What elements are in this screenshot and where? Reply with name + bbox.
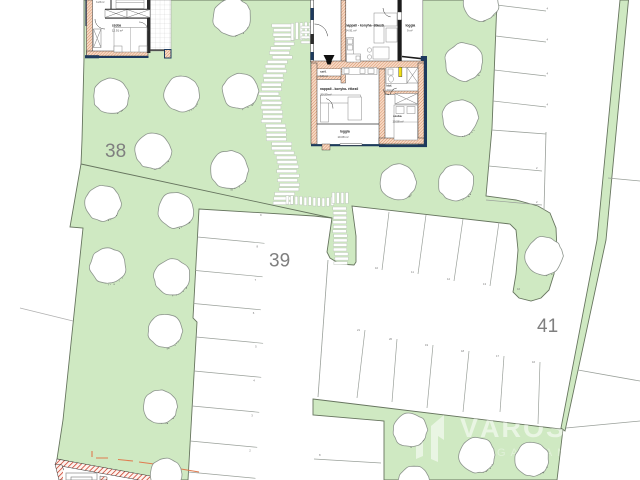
- svg-text:22.23 m²: 22.23 m²: [321, 93, 332, 97]
- svg-text:21: 21: [357, 328, 361, 332]
- svg-text:24.91 m²: 24.91 m²: [346, 29, 357, 33]
- svg-text:nappali - konyha- étkező: nappali - konyha- étkező: [320, 87, 358, 91]
- svg-text:13: 13: [483, 282, 487, 286]
- svg-text:12: 12: [447, 277, 451, 281]
- svg-text:10.58 m²: 10.58 m²: [393, 120, 404, 124]
- svg-text:3.61 m²: 3.61 m²: [387, 89, 395, 92]
- svg-text:szoba: szoba: [112, 24, 121, 28]
- svg-text:39: 39: [269, 251, 290, 272]
- svg-text:19: 19: [425, 343, 429, 347]
- svg-text:3.23 m²: 3.23 m²: [96, 1, 105, 4]
- svg-text:18: 18: [461, 349, 465, 353]
- svg-text:nappali - konyha- étkező: nappali - konyha- étkező: [346, 23, 384, 27]
- svg-text:loggia: loggia: [406, 23, 416, 27]
- svg-text:9 m²: 9 m²: [407, 29, 413, 33]
- svg-text:38: 38: [105, 141, 126, 162]
- svg-text:10: 10: [375, 266, 379, 270]
- svg-text:41: 41: [537, 316, 558, 337]
- svg-text:11: 11: [411, 270, 414, 274]
- svg-text:szél.: szél.: [320, 70, 327, 74]
- svg-text:3.24 m²: 3.24 m²: [320, 75, 329, 78]
- svg-text:szoba: szoba: [393, 114, 402, 118]
- svg-text:16: 16: [532, 360, 536, 364]
- svg-text:közl.: közl.: [387, 85, 393, 88]
- svg-text:10.08 m²: 10.08 m²: [338, 135, 349, 139]
- svg-text:12.91 m²: 12.91 m²: [112, 29, 123, 33]
- svg-text:20: 20: [389, 337, 393, 341]
- svg-text:17: 17: [496, 354, 500, 358]
- svg-text:loggia: loggia: [340, 130, 350, 134]
- svg-text:16: 16: [517, 287, 521, 291]
